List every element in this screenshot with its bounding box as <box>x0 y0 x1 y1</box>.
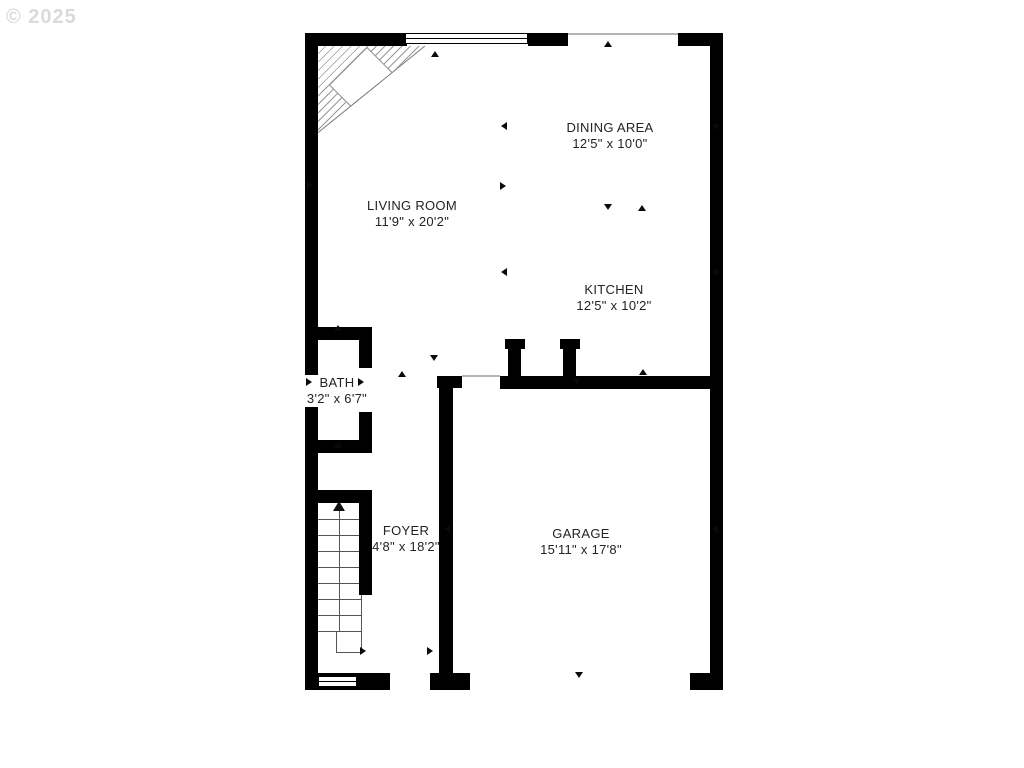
floor-plan: © 2025 DINING AREA 12'5" x 10'0" LIVING <box>0 0 1024 768</box>
direction-marker-icon <box>604 204 612 210</box>
direction-marker-icon <box>334 442 342 448</box>
room-name: DINING AREA <box>530 120 690 136</box>
alcove-left-cap <box>505 339 525 349</box>
foyer-divider-cap <box>437 376 462 388</box>
window-pane-line <box>319 681 356 682</box>
direction-marker-icon <box>501 268 507 276</box>
direction-marker-icon <box>360 647 366 655</box>
room-label-bath: BATH 3'2" x 6'7" <box>277 375 397 407</box>
direction-marker-icon <box>398 371 406 377</box>
direction-marker-icon <box>501 122 507 130</box>
kitchen-door-opening-line <box>462 375 500 377</box>
wall-left <box>305 33 318 690</box>
direction-marker-icon <box>358 378 364 386</box>
stair-wall-top <box>305 490 372 503</box>
room-name: BATH <box>277 375 397 391</box>
room-label-garage: GARAGE 15'11" x 17'8" <box>501 526 661 558</box>
stair-edge-line <box>361 595 362 653</box>
bath-wall-right-lower <box>359 412 372 440</box>
direction-marker-icon <box>444 525 450 533</box>
room-name: LIVING ROOM <box>332 198 492 214</box>
direction-marker-icon <box>638 205 646 211</box>
bath-wall-right-upper <box>359 340 372 368</box>
stair-walkline-horizontal <box>336 652 362 653</box>
room-name: GARAGE <box>501 526 661 542</box>
room-name: FOYER <box>326 523 486 539</box>
room-dimensions: 3'2" x 6'7" <box>277 391 397 407</box>
room-label-dining: DINING AREA 12'5" x 10'0" <box>530 120 690 152</box>
room-dimensions: 12'5" x 10'0" <box>530 136 690 152</box>
room-label-foyer: FOYER 4'8" x 18'2" <box>326 523 486 555</box>
room-dimensions: 15'11" x 17'8" <box>501 542 661 558</box>
alcove-left-stub <box>508 349 521 377</box>
window-top <box>405 33 528 44</box>
kitchen-garage-wall <box>500 376 710 389</box>
wall-top-mid-segment <box>528 33 568 46</box>
direction-marker-icon <box>430 355 438 361</box>
wall-bottom-right-foot <box>690 673 723 690</box>
room-dimensions: 11'9" x 20'2" <box>332 214 492 230</box>
direction-marker-icon <box>712 525 718 533</box>
direction-marker-icon <box>575 672 583 678</box>
copyright-watermark: © 2025 <box>6 6 77 29</box>
room-dimensions: 12'5" x 10'2" <box>534 298 694 314</box>
direction-marker-icon <box>500 182 506 190</box>
wall-right <box>710 33 723 690</box>
room-name: KITCHEN <box>534 282 694 298</box>
direction-marker-icon <box>334 325 342 331</box>
room-label-living: LIVING ROOM 11'9" x 20'2" <box>332 198 492 230</box>
wall-top-left-segment <box>305 33 407 46</box>
room-label-kitchen: KITCHEN 12'5" x 10'2" <box>534 282 694 314</box>
direction-marker-icon <box>427 647 433 655</box>
stair-walkline-vertical <box>336 631 337 653</box>
direction-marker-icon <box>306 378 312 386</box>
direction-marker-icon <box>307 181 313 189</box>
direction-marker-icon <box>712 122 718 130</box>
alcove-right-stub <box>563 349 576 377</box>
direction-marker-icon <box>604 41 612 47</box>
direction-marker-icon <box>639 369 647 375</box>
alcove-right-cap <box>560 339 580 349</box>
wall-divider-foot <box>430 673 470 690</box>
room-dimensions: 4'8" x 18'2" <box>326 539 486 555</box>
corner-stairs-diamond <box>329 47 405 123</box>
direction-marker-icon <box>573 379 581 385</box>
wall-opening-line-top <box>568 33 678 35</box>
window-pane-line <box>406 38 527 39</box>
direction-marker-icon <box>431 51 439 57</box>
window-bottom <box>318 676 357 687</box>
direction-marker-icon <box>712 268 718 276</box>
